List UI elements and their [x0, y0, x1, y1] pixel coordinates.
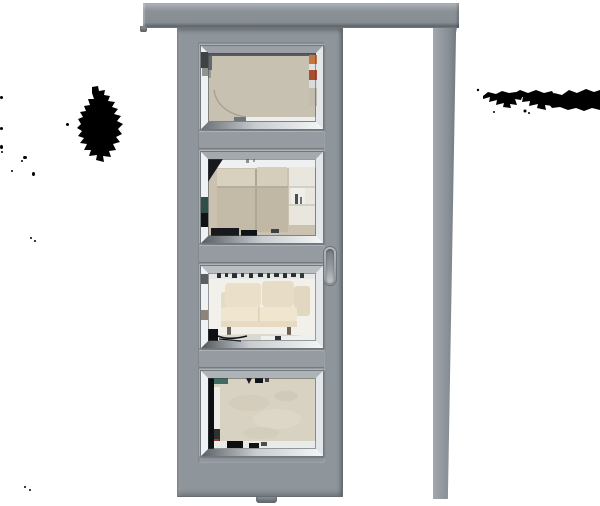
sliding-door-leaf: [177, 28, 343, 497]
artifact-speck: [1, 151, 3, 153]
artifact-speck: [23, 156, 27, 159]
artifact-blob-right: [474, 84, 600, 116]
door-mid-rail-2: [199, 245, 324, 263]
artifact-speck: [79, 126, 81, 128]
track-endcap: [140, 26, 147, 32]
artifact-speck: [34, 240, 36, 242]
artifact-speck: [0, 96, 3, 99]
artifact-speck: [32, 172, 35, 176]
glass-pane-2-art: [201, 152, 323, 243]
artifact-speck: [24, 486, 26, 488]
artifact-speck: [0, 127, 3, 130]
wall-post-profile: [433, 27, 457, 499]
artifact-speck: [29, 489, 31, 491]
artifact-speck: [66, 123, 69, 126]
artifact-speck: [0, 145, 3, 149]
glass-reflection-plaster: [208, 378, 316, 449]
glass-reflection-cabinets: [208, 159, 316, 236]
handle-recess: [326, 249, 334, 283]
glass-reflection-wall: [208, 53, 317, 122]
glass-pane-4-art: [201, 371, 323, 456]
ceiling-track: [143, 3, 459, 28]
artifact-speck: [11, 170, 13, 172]
door-mid-rail-1: [199, 131, 324, 149]
glass-pane-1-art: [201, 46, 323, 129]
glass-reflection-sofa: [208, 273, 316, 341]
glass-pane-2: [200, 151, 324, 244]
door-mid-rail-3: [199, 350, 324, 368]
glass-pane-3-art: [201, 266, 323, 348]
product-image-scene: [0, 0, 600, 506]
glass-pane-4: [200, 370, 324, 457]
artifact-speck: [30, 237, 32, 239]
artifact-blob-left: [72, 84, 128, 166]
glass-pane-3: [200, 265, 324, 349]
glass-pane-1: [200, 45, 324, 130]
flush-pull-handle: [324, 247, 336, 285]
artifact-speck: [21, 160, 23, 162]
